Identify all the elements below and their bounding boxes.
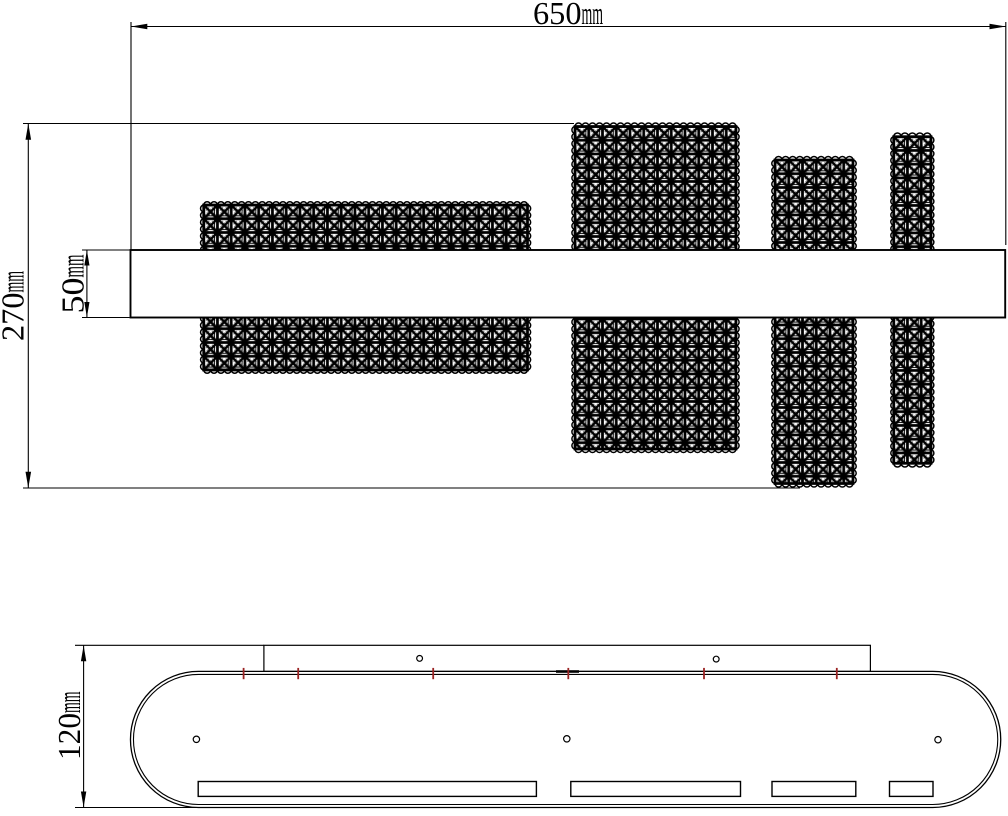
svg-text:mm: mm	[55, 254, 91, 277]
svg-text:120: 120	[51, 713, 87, 760]
svg-text:mm: mm	[582, 0, 604, 31]
svg-text:50: 50	[55, 278, 91, 314]
svg-text:mm: mm	[0, 271, 31, 293]
svg-text:mm: mm	[51, 691, 87, 713]
svg-text:650: 650	[533, 0, 582, 31]
svg-text:270: 270	[0, 293, 31, 342]
